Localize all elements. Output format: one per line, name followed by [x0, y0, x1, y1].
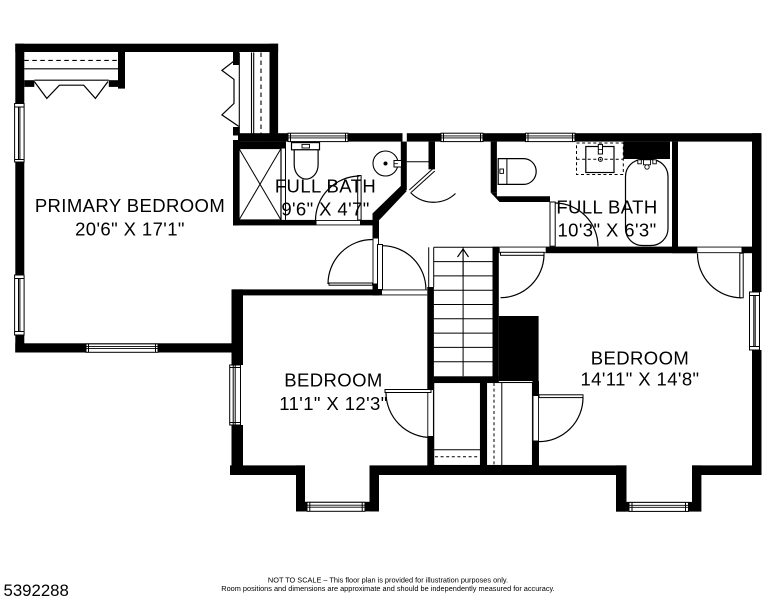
svg-text:FULL BATH: FULL BATH [556, 196, 657, 217]
svg-text:11'1" X 12'3": 11'1" X 12'3" [279, 393, 387, 414]
svg-text:Room positions and dimensions: Room positions and dimensions are approx… [221, 584, 554, 593]
svg-text:BEDROOM: BEDROOM [591, 347, 689, 368]
svg-text:5392288: 5392288 [4, 581, 69, 600]
svg-text:FULL BATH: FULL BATH [275, 175, 376, 196]
svg-text:9'6" X 4'7": 9'6" X 4'7" [281, 199, 369, 220]
svg-text:BEDROOM: BEDROOM [284, 370, 382, 391]
svg-text:20'6" X 17'1": 20'6" X 17'1" [75, 218, 185, 239]
svg-text:PRIMARY BEDROOM: PRIMARY BEDROOM [35, 195, 225, 216]
svg-text:14'11" X 14'8": 14'11" X 14'8" [580, 368, 699, 389]
svg-text:10'3" X 6'3": 10'3" X 6'3" [557, 220, 656, 241]
